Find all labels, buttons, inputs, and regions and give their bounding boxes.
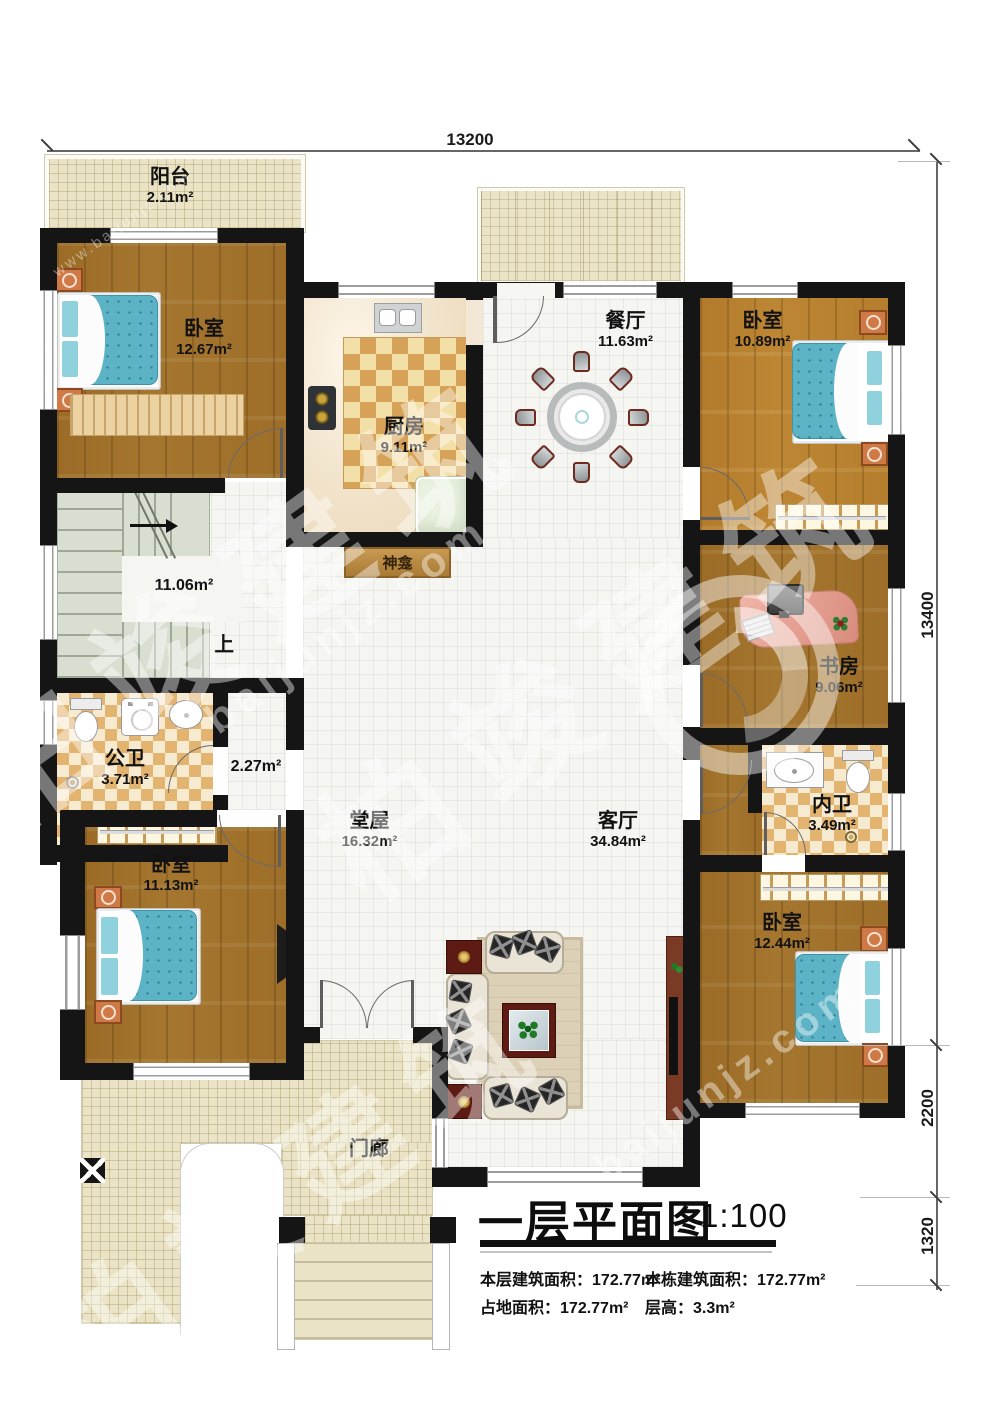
room-area: 11.63m² <box>568 333 683 350</box>
dim-line-top <box>47 150 920 152</box>
window <box>487 1167 643 1187</box>
room-area: 9.11m² <box>348 439 460 456</box>
stat-storey-height: 层高：3.3m² <box>645 1294 735 1318</box>
room-name: 卧室 <box>705 310 820 333</box>
room-area: 16.32m² <box>312 833 427 850</box>
dim-label-top: 13200 <box>415 130 525 150</box>
nightstand <box>94 1000 122 1024</box>
door-leaf <box>700 673 703 727</box>
drawing-scale: 1:100 <box>700 1197 788 1235</box>
desk-plant <box>832 615 849 632</box>
knob-icon <box>866 315 881 330</box>
porch-floor-b <box>82 1080 303 1143</box>
terrace-pillar <box>80 1158 105 1183</box>
knob-icon <box>867 447 882 462</box>
stair-hall-area-label: 11.06m² <box>128 577 240 594</box>
stat-label: 占地面积： <box>480 1300 560 1317</box>
toilet-bowl <box>74 711 98 742</box>
stair-up-arrow-head <box>166 519 178 533</box>
vanity-sink <box>774 758 814 783</box>
wall <box>286 810 304 1080</box>
porch-floor-a <box>303 1041 432 1143</box>
gold-knob-icon <box>458 951 470 963</box>
wall <box>466 282 483 300</box>
drain-dot <box>792 769 797 774</box>
kitchen-rug <box>343 337 468 489</box>
console-plant <box>668 960 684 976</box>
burner-icon <box>315 410 329 424</box>
nightstand <box>861 442 888 466</box>
nightstand <box>859 310 887 335</box>
table-plant <box>516 1017 540 1041</box>
gold-knob-icon <box>458 1096 470 1108</box>
room-label-porch: 门廊 <box>328 1138 410 1161</box>
door-leaf <box>700 517 750 520</box>
stat-total-area: 本栋建筑面积：172.77m² <box>645 1266 826 1290</box>
sink-basin <box>379 309 396 326</box>
room-name: 客厅 <box>558 810 678 833</box>
door-leaf <box>411 980 414 1028</box>
window <box>888 345 905 435</box>
room-label-inner-bath: 内卫 3.49m² <box>788 794 876 834</box>
bed-se-sheet <box>838 954 860 1042</box>
wall <box>683 855 762 872</box>
title-underline-thin <box>480 1251 772 1253</box>
washer-dial-icon <box>148 702 153 706</box>
wall <box>683 820 700 1187</box>
burner-icon <box>315 392 329 406</box>
pillow <box>100 957 119 996</box>
wall <box>40 678 286 693</box>
window <box>745 1103 860 1118</box>
window <box>888 948 905 1046</box>
cushion <box>449 980 471 1002</box>
porch-column-left <box>277 1243 295 1350</box>
stat-value: 172.77m² <box>757 1272 826 1289</box>
stair-up-arrow-shaft <box>130 524 166 527</box>
bath-sink <box>169 700 203 729</box>
title-underline <box>480 1240 776 1247</box>
wall <box>213 795 228 810</box>
wall <box>213 693 228 747</box>
stove <box>308 386 336 430</box>
dining-chair <box>628 409 649 426</box>
pillow <box>61 300 79 338</box>
stat-label: 本层建筑面积： <box>480 1272 592 1289</box>
room-area: 3.49m² <box>788 817 876 834</box>
nightstand <box>860 926 888 952</box>
room-name: 堂屋 <box>312 810 427 833</box>
wardrobe <box>775 504 889 530</box>
room-label-bedroom-nw: 卧室 12.67m² <box>145 318 263 358</box>
sink-basin <box>399 309 416 326</box>
room-label-kitchen: 厨房 9.11m² <box>348 416 460 456</box>
corridor-floor <box>228 693 286 810</box>
knob-icon <box>101 1005 116 1020</box>
room-area: 10.89m² <box>705 333 820 350</box>
room-area: 11.06m² <box>128 577 240 594</box>
window <box>40 545 57 640</box>
window <box>888 793 905 851</box>
window <box>40 290 57 410</box>
wall <box>748 745 762 813</box>
room-name: 阳台 <box>118 166 222 189</box>
window <box>60 935 85 1010</box>
wall <box>413 1027 448 1043</box>
stair-up-label: 上 <box>205 634 243 657</box>
wall <box>683 530 700 665</box>
wardrobe <box>760 874 891 901</box>
room-name: 门廊 <box>328 1138 410 1161</box>
room-name: 内卫 <box>788 794 876 817</box>
room-label-balcony: 阳台 2.11m² <box>118 166 222 206</box>
room-name: 卧室 <box>145 318 263 341</box>
room-area: 34.84m² <box>558 833 678 850</box>
knob-icon <box>868 1048 883 1063</box>
nightstand <box>55 268 83 292</box>
room-name: 公卫 <box>78 748 172 771</box>
window <box>40 700 57 745</box>
drain-dot <box>184 713 189 718</box>
television <box>669 997 678 1075</box>
room-label-hall: 堂屋 16.32m² <box>312 810 427 850</box>
knob-icon <box>62 273 77 288</box>
window <box>732 282 798 298</box>
room-label-dining: 餐厅 11.63m² <box>568 310 683 350</box>
up-text: 上 <box>205 634 243 657</box>
corridor-area-label: 2.27m² <box>212 758 300 775</box>
door-leaf <box>764 812 767 855</box>
toilet-bowl <box>846 762 870 793</box>
dim-ext-line <box>898 161 950 162</box>
wall <box>286 532 466 547</box>
shrine-label: 神龛 <box>382 552 412 573</box>
dim-label-right-mid: 2200 <box>918 1078 938 1138</box>
floor-plan: 神龛 <box>0 0 1000 1416</box>
stat-footprint: 占地面积：172.77m² <box>480 1294 629 1318</box>
porch-pillar <box>430 1217 456 1243</box>
deck-floor <box>478 188 684 284</box>
dim-label-right-low: 1320 <box>918 1206 938 1266</box>
room-name: 餐厅 <box>568 310 683 333</box>
pillow <box>864 998 881 1034</box>
shrine-cabinet: 神龛 <box>344 547 451 578</box>
room-label-bedroom-se: 卧室 12.44m² <box>722 912 842 952</box>
stat-value: 3.3m² <box>693 1300 735 1317</box>
room-label-bedroom-ne: 卧室 10.89m² <box>705 310 820 350</box>
wall <box>683 282 700 467</box>
room-area: 3.71m² <box>78 771 172 788</box>
room-area: 2.27m² <box>212 758 300 775</box>
door-opening <box>466 300 483 345</box>
monitor-stand <box>779 611 789 618</box>
dining-chair <box>573 351 590 372</box>
stair-flight-left <box>57 492 122 678</box>
toilet-tank <box>70 698 102 710</box>
door-leaf <box>700 760 703 814</box>
window <box>432 1118 448 1168</box>
pillow <box>61 340 79 378</box>
pillow <box>864 960 881 996</box>
balcony-sliding-door <box>110 228 218 243</box>
porch-steps <box>293 1243 433 1339</box>
rattan-mat <box>70 394 244 436</box>
room-name: 厨房 <box>348 416 460 439</box>
stat-label: 层高： <box>645 1300 693 1317</box>
wall <box>683 530 905 545</box>
pillow <box>866 390 883 426</box>
wall <box>303 1027 320 1043</box>
washer-door-icon <box>131 709 153 731</box>
door-leaf <box>280 428 283 478</box>
window <box>563 282 657 298</box>
dining-chair <box>515 409 536 426</box>
porch-column-right <box>432 1243 450 1350</box>
room-label-bedroom-sw: 卧室 11.13m² <box>112 854 230 894</box>
door-leaf <box>493 296 497 343</box>
room-name: 卧室 <box>112 854 230 877</box>
room-name: 卧室 <box>722 912 842 935</box>
room-area: 12.44m² <box>722 935 842 952</box>
room-area: 2.11m² <box>118 189 222 206</box>
nightstand <box>862 1043 889 1067</box>
room-label-living: 客厅 34.84m² <box>558 810 678 850</box>
wall <box>286 228 304 547</box>
driveway-cutout <box>180 1143 284 1335</box>
wall <box>466 345 483 547</box>
room-label-study: 书房 9.06m² <box>786 656 892 696</box>
stat-label: 本栋建筑面积： <box>645 1272 757 1289</box>
wall <box>683 727 700 760</box>
room-area: 9.06m² <box>786 679 892 696</box>
fridge <box>416 477 472 535</box>
end-table <box>446 940 482 974</box>
toilet-tank <box>842 750 874 761</box>
window <box>133 1063 250 1080</box>
bed-ne-sheet <box>834 343 858 439</box>
dining-table-center <box>575 410 589 424</box>
knob-icon <box>867 932 882 947</box>
wall <box>40 478 225 493</box>
room-area: 12.67m² <box>145 341 263 358</box>
end-table <box>446 1084 482 1119</box>
kitchen-sink <box>374 303 422 333</box>
washing-machine <box>121 698 159 736</box>
dim-label-right-main: 13400 <box>918 585 938 645</box>
door-leaf <box>320 980 323 1028</box>
door-leaf <box>278 815 281 867</box>
dining-chair <box>573 462 590 483</box>
pillow <box>866 350 883 386</box>
window <box>338 282 435 298</box>
room-name: 书房 <box>786 656 892 679</box>
washer-dial-icon <box>128 702 133 706</box>
pillow <box>100 916 119 955</box>
wall <box>700 728 888 745</box>
room-area: 11.13m² <box>112 877 230 894</box>
porch-pillar <box>279 1217 305 1243</box>
porch-floor-e <box>305 1215 432 1243</box>
stat-floor-area: 本层建筑面积：172.77m² <box>480 1266 661 1290</box>
stair-flight-bottom <box>122 622 210 678</box>
wall <box>286 678 304 750</box>
stat-value: 172.77m² <box>560 1300 629 1317</box>
room-label-public-bath: 公卫 3.71m² <box>78 748 172 788</box>
